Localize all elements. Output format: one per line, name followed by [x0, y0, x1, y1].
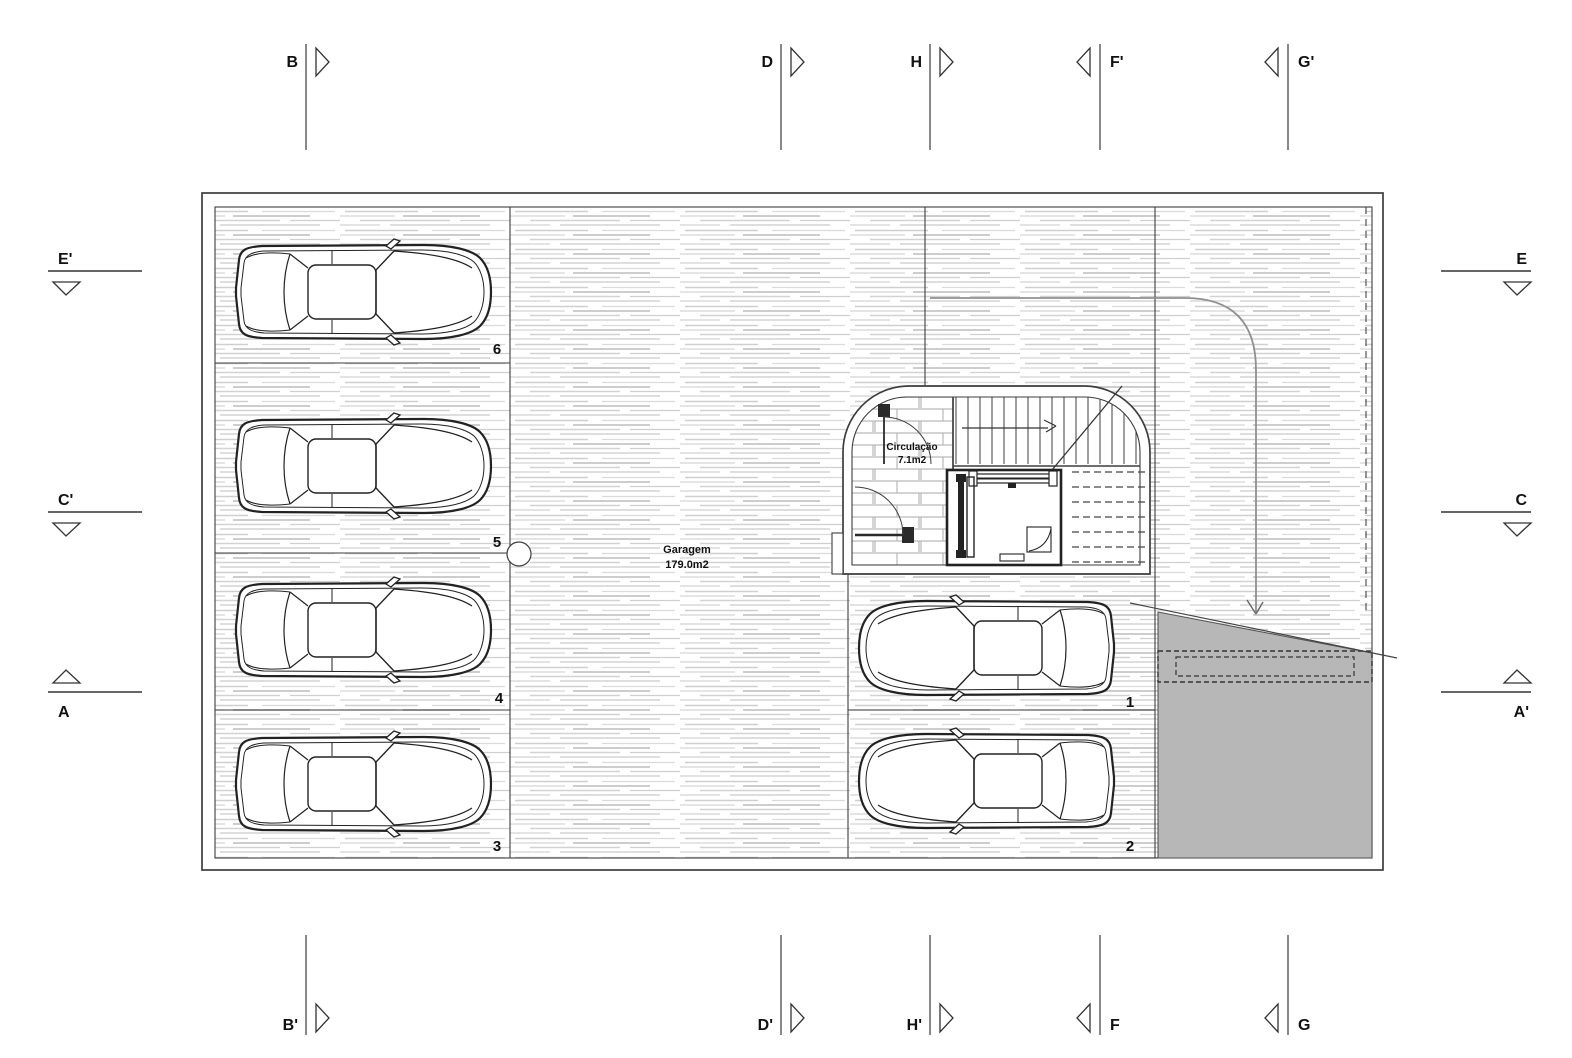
car-spot-3	[236, 731, 491, 837]
door-jamb-upper	[878, 404, 890, 417]
circulation-room-area: 7.1m2	[898, 455, 927, 466]
section-markers-right: E C A'	[1441, 251, 1531, 721]
svg-text:B': B'	[283, 1017, 298, 1034]
door-jamb-lower	[902, 527, 914, 543]
column	[507, 542, 531, 566]
svg-text:A: A	[58, 704, 70, 721]
svg-text:E: E	[1516, 251, 1527, 268]
svg-text:F': F'	[1110, 54, 1124, 71]
section-marker-G: G	[1265, 935, 1310, 1035]
spot-label-4: 4	[495, 690, 504, 707]
svg-text:C: C	[1515, 492, 1527, 509]
svg-text:H': H'	[907, 1017, 922, 1034]
svg-text:D: D	[761, 54, 773, 71]
svg-text:A': A'	[1514, 704, 1529, 721]
section-markers-left: E' C' A	[48, 251, 142, 721]
section-marker-F-prime: F'	[1077, 44, 1124, 150]
stair-block	[832, 386, 1150, 574]
section-markers-top: B D H F' G'	[286, 44, 1314, 150]
section-marker-D-prime: D'	[758, 935, 804, 1035]
section-marker-E: E	[1441, 251, 1531, 295]
ramp-slab	[1158, 612, 1372, 858]
spot-label-1: 1	[1126, 694, 1134, 711]
garage-floor-plan-page: Garagem 179.0m2 Circulação 7.1m2 6 5 4 3…	[0, 0, 1572, 1058]
door-wall-step	[832, 533, 843, 574]
elevator-buffer	[1000, 554, 1024, 561]
garage-room-area: 179.0m2	[665, 559, 708, 571]
spot-label-3: 3	[493, 838, 501, 855]
elevator-rail-1	[958, 477, 964, 557]
section-marker-A: A	[48, 670, 142, 721]
svg-text:F: F	[1110, 1017, 1120, 1034]
elevator-rail-bracket-bottom	[956, 550, 966, 558]
elevator-rail-bracket-top	[956, 474, 966, 482]
section-marker-B: B	[286, 44, 329, 150]
floor-plan-drawing: Garagem 179.0m2 Circulação 7.1m2 6 5 4 3…	[0, 0, 1572, 1058]
section-marker-H: H	[910, 44, 953, 150]
car-spot-1	[859, 595, 1114, 701]
circulation-room-name: Circulação	[886, 442, 937, 453]
spot-label-5: 5	[493, 534, 501, 551]
garage-room-name: Garagem	[663, 544, 711, 556]
elevator-door-cap-left	[969, 471, 977, 486]
svg-text:C': C'	[58, 492, 73, 509]
svg-text:B: B	[286, 54, 298, 71]
section-marker-D: D	[761, 44, 804, 150]
svg-text:G': G'	[1298, 54, 1314, 71]
section-marker-A-prime: A'	[1441, 670, 1531, 721]
section-marker-H-prime: H'	[907, 935, 953, 1035]
car-spot-5	[236, 413, 491, 519]
svg-text:G: G	[1298, 1017, 1310, 1034]
section-marker-G-prime: G'	[1265, 44, 1314, 150]
elevator-door-center	[1008, 483, 1016, 488]
section-marker-C-prime: C'	[48, 492, 142, 536]
elevator	[947, 470, 1061, 565]
svg-text:H: H	[910, 54, 922, 71]
car-spot-2	[859, 728, 1114, 834]
car-spot-6	[236, 239, 491, 345]
section-markers-bottom: B' D' H' F G	[283, 935, 1311, 1035]
svg-text:E': E'	[58, 251, 72, 268]
spot-label-6: 6	[493, 341, 501, 358]
car-spot-4	[236, 577, 491, 683]
section-marker-F: F	[1077, 935, 1120, 1035]
spot-label-2: 2	[1126, 838, 1134, 855]
section-marker-E-prime: E'	[48, 251, 142, 295]
elevator-door-cap-right	[1049, 471, 1057, 486]
section-marker-C: C	[1441, 492, 1531, 536]
svg-text:D': D'	[758, 1017, 773, 1034]
section-marker-B-prime: B'	[283, 935, 329, 1035]
